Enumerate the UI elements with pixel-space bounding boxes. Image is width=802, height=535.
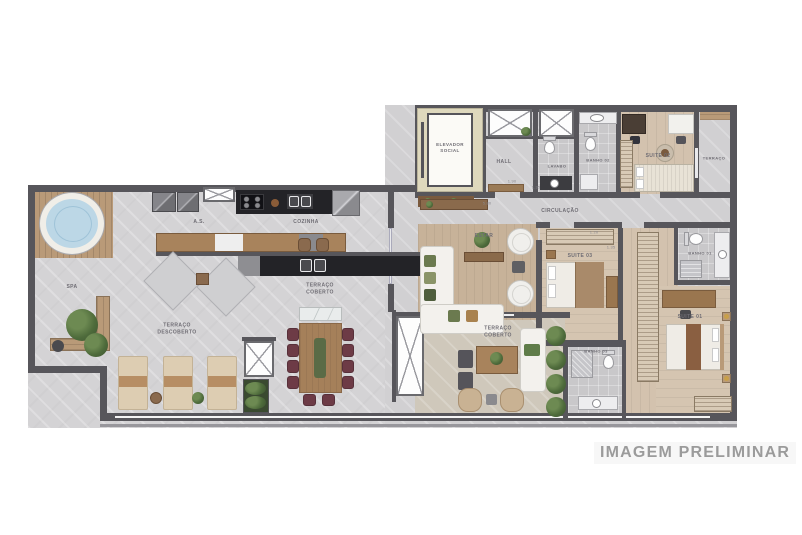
terrace-plant (546, 326, 566, 346)
shower-tray (580, 174, 598, 190)
sliding-glass-door (695, 148, 698, 178)
dining-chair (287, 360, 299, 373)
sofa-cushion (424, 289, 436, 301)
cooktop (240, 194, 264, 210)
room-label-terraco: TERRAÇO (703, 155, 726, 160)
hall-plant (521, 127, 531, 136)
dining-chair (287, 328, 299, 341)
elevator-door (421, 122, 424, 178)
wall (574, 222, 622, 228)
wall (622, 346, 626, 420)
terrace-plant (546, 397, 566, 417)
room-label-estar: ESTAR (475, 233, 494, 240)
room-label-cozinha: COZINHA (293, 219, 319, 226)
room-label-suite02: SUITE 02 (646, 153, 671, 160)
pillow (548, 284, 556, 298)
bed-blanket (575, 262, 604, 308)
nightstand (546, 250, 556, 259)
wall (536, 222, 550, 228)
wall (618, 228, 623, 344)
spa-water-swirl (54, 206, 92, 242)
wardrobe (694, 396, 732, 412)
wall (533, 108, 538, 192)
shower (571, 350, 593, 378)
room-label-suite03: SUITE 03 (568, 253, 593, 260)
wall (388, 192, 394, 228)
armchair-round (507, 280, 534, 307)
dining-chair (287, 344, 299, 357)
room-label-as: A.S. (193, 219, 204, 226)
dining-chair (342, 376, 354, 389)
room-label-hall: HALL (497, 159, 512, 166)
dryer (177, 192, 199, 212)
terrace-chair (458, 350, 473, 368)
daybed (520, 328, 546, 392)
window-glazing (115, 416, 710, 418)
side-table (196, 273, 209, 285)
wall (730, 105, 737, 421)
side-table (150, 392, 162, 404)
terrace-planter (700, 112, 730, 120)
dimension-text: 1.35 (607, 245, 616, 250)
wall (644, 222, 737, 228)
terrace-plant (546, 374, 566, 394)
hall-bench (488, 184, 524, 192)
sofa-cushion (424, 255, 436, 267)
dimension-text: 5.80 (483, 201, 492, 206)
sink-basin (300, 259, 312, 272)
room-label-terraco-descoberto: TERRAÇO DESCOBERTO (157, 323, 196, 336)
dining-chair (342, 328, 354, 341)
washbasin (718, 250, 727, 259)
lamp (724, 376, 729, 381)
dining-chair (287, 376, 299, 389)
wall (660, 192, 737, 198)
potted-plant (192, 392, 204, 404)
wardrobe (620, 140, 633, 188)
wall (674, 228, 678, 284)
planter-greenery (245, 382, 266, 395)
wall (674, 280, 732, 285)
room-label-banho01: BANHO 01 (688, 250, 711, 255)
sink-basin (289, 196, 299, 207)
wall (388, 284, 394, 312)
dining-chair (322, 394, 335, 406)
washbasin (550, 179, 559, 188)
shaft-xbox (539, 109, 574, 137)
sofa-cushion (466, 310, 478, 322)
terrace-plant (546, 350, 566, 370)
room-label-spa: SPA (66, 284, 77, 291)
room-label-banho02: BANHO 02 (586, 157, 609, 162)
room-label-elevador: ELEVADOR SOCIAL (436, 142, 464, 154)
desk-chair (676, 136, 686, 144)
wall (28, 185, 35, 373)
room-label-banho03: BANHO 03 (584, 348, 607, 353)
headboard (720, 324, 724, 370)
room-label-suite01: SUITE 01 (678, 314, 703, 321)
armchair-round (507, 228, 534, 255)
sun-lounger-band (208, 376, 236, 387)
table-runner (314, 338, 326, 378)
floor-plan-canvas: ELEVADOR SOCIAL SPA A.S. COZINHA TERRAÇO… (0, 0, 802, 535)
closet-wardrobe (637, 232, 659, 382)
toilet (543, 136, 556, 154)
garden-plant (84, 333, 108, 357)
washbasin (592, 399, 601, 408)
daybed-cushion (524, 344, 540, 356)
dimension-text: 1.90 (508, 179, 517, 184)
pillow (712, 348, 719, 362)
sun-lounger-band (119, 376, 147, 387)
desk (662, 290, 716, 308)
dimension-text: 1.20 (590, 230, 599, 235)
washer (152, 192, 176, 212)
balcony-edge (100, 424, 737, 427)
shaft-xbox (244, 341, 274, 377)
desk (622, 114, 646, 134)
rattan-armchair (500, 388, 524, 412)
dining-chair (342, 360, 354, 373)
pillow (548, 266, 556, 280)
wall (563, 342, 625, 347)
table-plant (490, 352, 503, 365)
grill-counter (238, 256, 420, 276)
marble-buffet (299, 307, 342, 321)
room-label-lavabo: LAVABO (548, 163, 567, 168)
shaft-xbox (203, 187, 235, 202)
plant-pot (52, 340, 64, 352)
kitchen-cabinet (332, 190, 360, 216)
room-label-terraco-coberto-kitchen: TERRAÇO COBERTO (306, 283, 334, 296)
rattan-armchair (458, 388, 482, 412)
dimension-text: 1.35 (532, 185, 541, 190)
wooden-bowl (271, 199, 279, 207)
bar-stool (316, 238, 329, 252)
side-table (512, 261, 525, 273)
toilet (684, 232, 704, 246)
toilet (584, 132, 597, 151)
pillow (636, 179, 644, 189)
wardrobe (546, 229, 614, 245)
side-table (486, 394, 497, 405)
watermark-text: IMAGEM PRELIMINAR (594, 442, 796, 464)
pillow (636, 167, 644, 177)
wall (520, 192, 640, 198)
coffee-table (464, 252, 504, 262)
sink-basin (301, 196, 311, 207)
pillow (712, 328, 719, 342)
planter-greenery (245, 396, 266, 409)
vanity-desk (668, 114, 694, 134)
sofa-cushion (424, 272, 436, 284)
sideboard-plant (426, 201, 433, 208)
bar-stool (298, 238, 311, 252)
sun-lounger-band (164, 376, 192, 387)
room-label-circulacao: CIRCULAÇÃO (541, 208, 579, 215)
washbasin (590, 114, 604, 122)
dining-chair (342, 344, 354, 357)
lamp (724, 314, 729, 319)
sink-basin (314, 259, 326, 272)
bed-runner (686, 324, 701, 370)
room-label-terraco-coberto-right: TERRAÇO COBERTO (484, 326, 512, 339)
sofa-cushion (448, 310, 460, 322)
desk (606, 276, 618, 308)
shower (680, 260, 702, 278)
dining-chair (303, 394, 316, 406)
wall (28, 366, 107, 373)
